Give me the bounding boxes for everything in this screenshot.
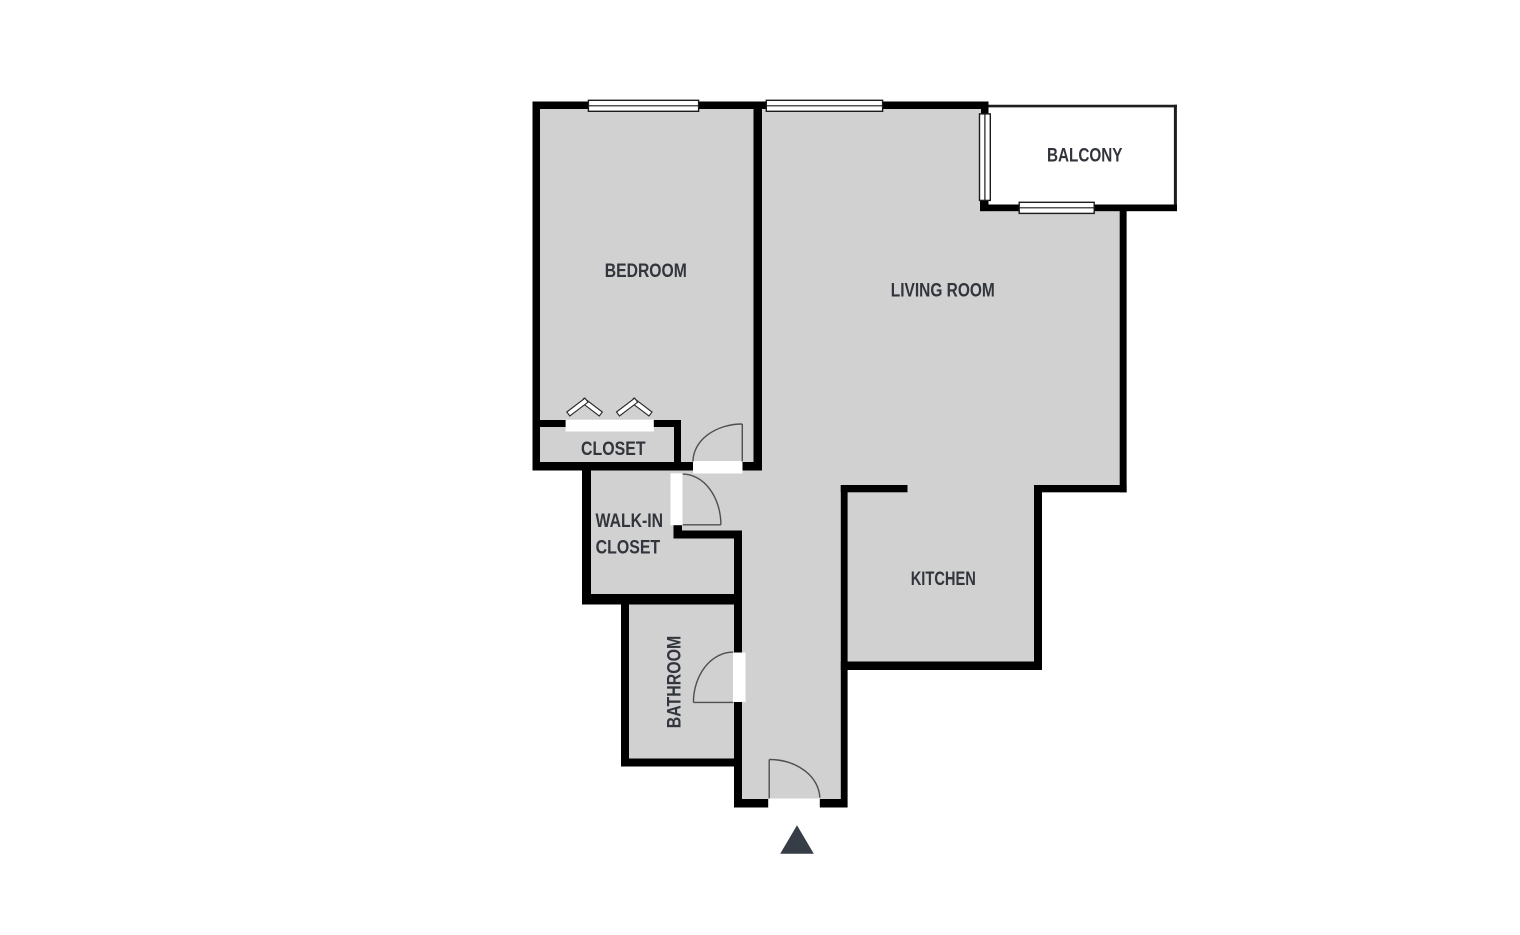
- svg-text:BEDROOM: BEDROOM: [605, 261, 687, 282]
- svg-text:CLOSET: CLOSET: [596, 538, 661, 559]
- svg-text:KITCHEN: KITCHEN: [911, 569, 976, 590]
- svg-text:LIVING ROOM: LIVING ROOM: [891, 281, 995, 302]
- svg-text:BALCONY: BALCONY: [1047, 146, 1123, 167]
- svg-text:BATHROOM: BATHROOM: [665, 636, 686, 729]
- svg-text:WALK-IN: WALK-IN: [596, 511, 664, 532]
- svg-text:CLOSET: CLOSET: [581, 439, 646, 460]
